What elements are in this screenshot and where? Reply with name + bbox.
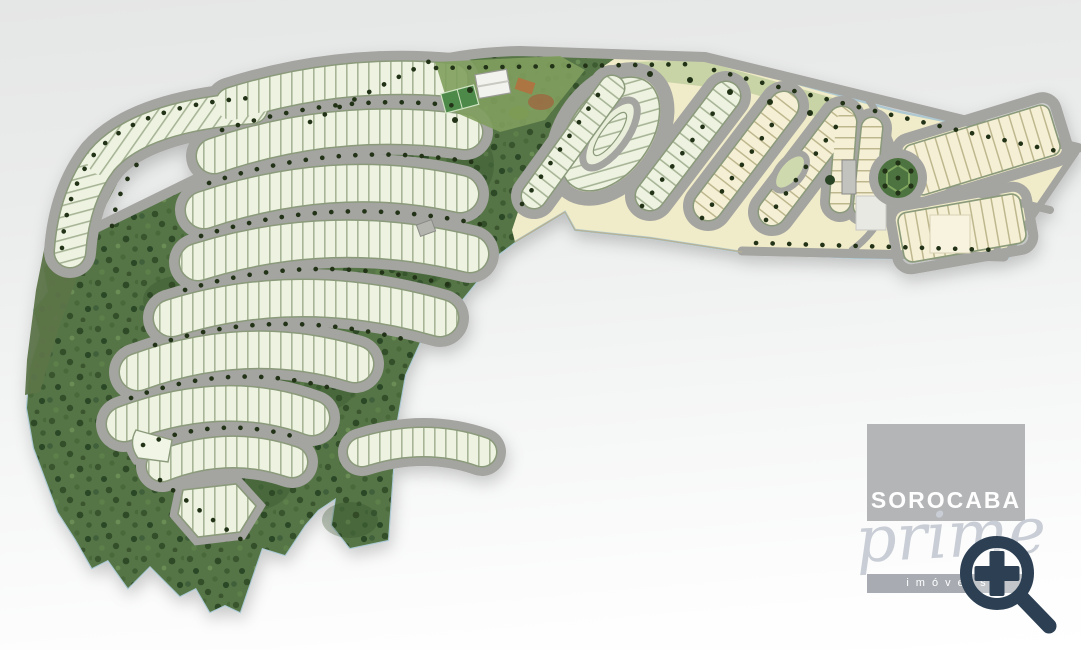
brand-name: SOROCABA [871, 489, 1021, 512]
brand-square: SOROCABA [867, 424, 1025, 521]
roundabout [869, 149, 927, 207]
clubhouse-building [475, 69, 511, 98]
zoom-magnifier-plus-icon[interactable] [940, 515, 1070, 645]
site-plan-map [0, 0, 1081, 650]
listing-photo: SOROCABA prime imóveis [0, 0, 1081, 650]
